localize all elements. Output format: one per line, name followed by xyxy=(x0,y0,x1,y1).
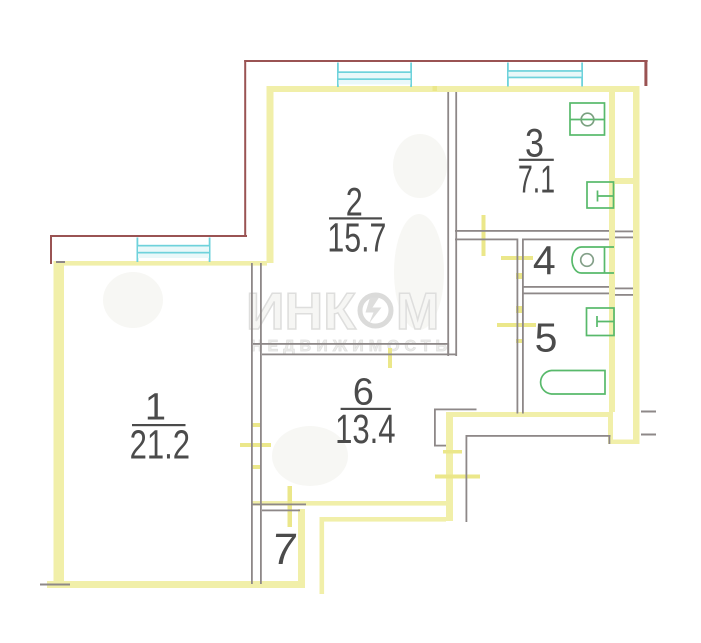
svg-text:ИНК: ИНК xyxy=(246,283,356,341)
svg-text:4: 4 xyxy=(533,237,556,283)
svg-text:13.4: 13.4 xyxy=(335,406,396,452)
svg-text:15.7: 15.7 xyxy=(327,214,386,260)
svg-text:7: 7 xyxy=(270,525,300,574)
svg-text:М: М xyxy=(396,283,439,341)
svg-text:7.1: 7.1 xyxy=(518,159,555,202)
svg-text:21.2: 21.2 xyxy=(130,422,191,468)
svg-text:5: 5 xyxy=(535,315,558,361)
